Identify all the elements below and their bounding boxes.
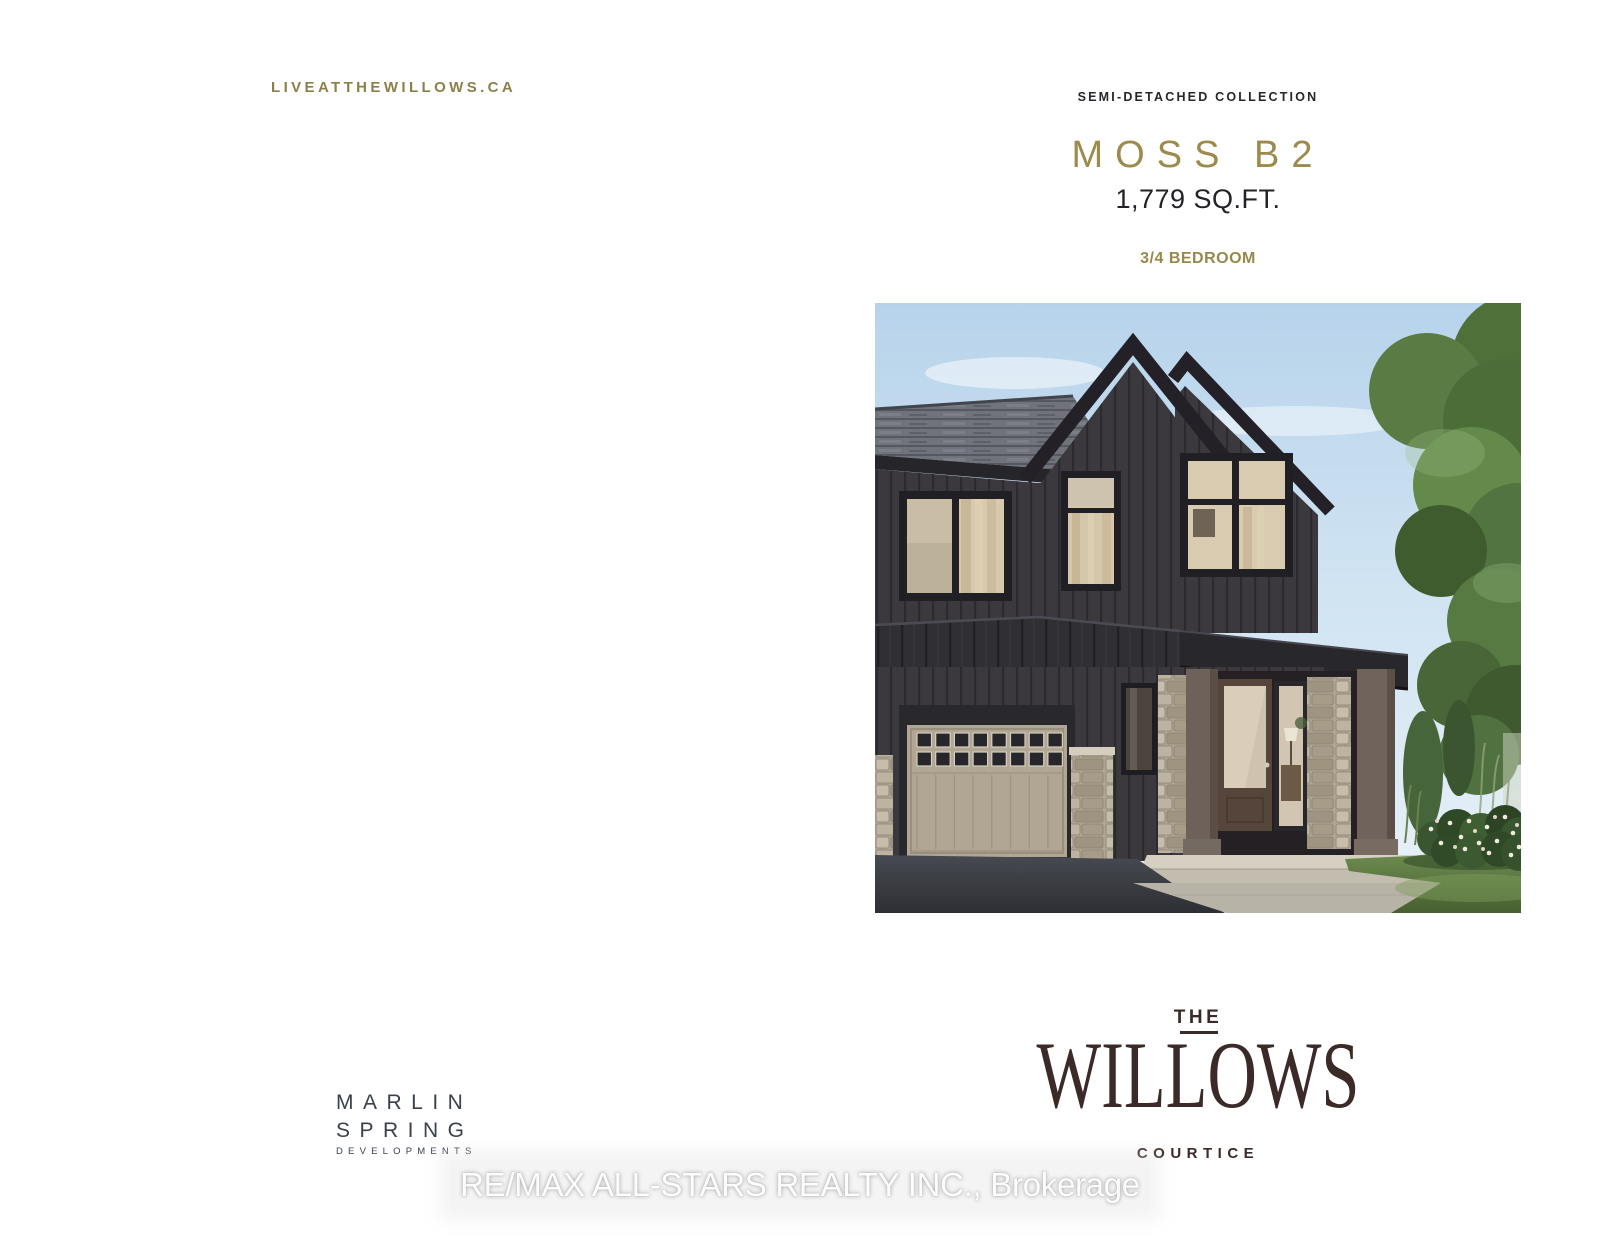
window-upper-right [1180,453,1293,577]
developer-logo-line1: MARLIN [336,1091,472,1115]
house-rendering-svg [875,303,1521,913]
window-upper-left [899,491,1012,601]
brochure-page: LIVEATTHEWILLOWS.CA SEMI-DETACHED COLLEC… [0,0,1600,1244]
garage [899,705,1075,857]
bedrooms-label: 3/4 BEDROOM [875,250,1521,268]
developer-logo-line2: SPRING [336,1119,474,1143]
collection-label: SEMI-DETACHED COLLECTION [875,90,1521,104]
door-sidelight [1274,681,1308,831]
porch-column-right [1354,669,1398,855]
porch-pillar-right-stone [1307,677,1351,849]
developer-logo-tagline: DEVELOPMENTS [336,1146,477,1157]
house-rendering-image [875,303,1521,913]
website-url-label: LIVEATTHEWILLOWS.CA [271,79,516,96]
remax-watermark: RE/MAX ALL-STARS REALTY INC., Brokerage [450,1160,1150,1210]
front-door [1218,679,1272,831]
window-ground-narrow [1121,683,1157,775]
model-name-heading: MOSS B2 [875,134,1521,177]
porch-column-left [1183,669,1221,855]
community-logo-wordmark: WILLOWS [965,1028,1430,1123]
square-footage-label: 1,779 SQ.FT. [875,184,1521,215]
window-upper-mid-narrow [1061,471,1121,591]
